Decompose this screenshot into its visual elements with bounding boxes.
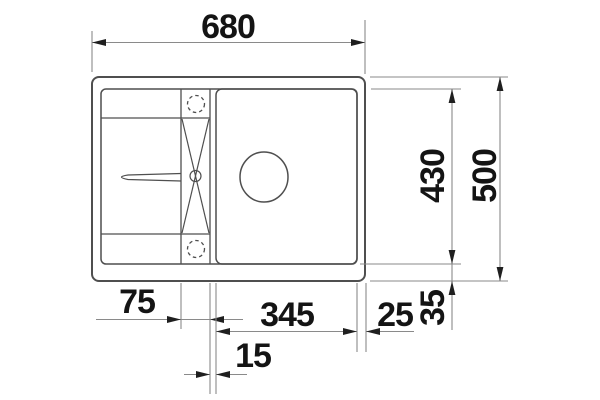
- tap-hole-bottom-icon: [188, 241, 205, 258]
- arrowhead-up: [497, 77, 504, 91]
- dimension-label-345: 345: [260, 296, 314, 334]
- sink-inner-rim: [101, 89, 357, 264]
- arrowhead-left: [92, 39, 106, 46]
- dimension-label-680: 680: [201, 8, 255, 46]
- dimension-label-15: 15: [235, 337, 271, 375]
- arrowhead-up: [449, 89, 456, 103]
- dimension-label-75: 75: [119, 283, 155, 321]
- arrowhead-right: [351, 39, 365, 46]
- arrowhead-down: [497, 267, 504, 281]
- dimension-tap-ledge-width: 75: [96, 283, 243, 329]
- dimension-bowl-depth: 430: [360, 89, 461, 264]
- sink-outline-group: [92, 77, 365, 281]
- dimension-label-35: 35: [414, 290, 452, 326]
- dimension-bowl-width: 345: [210, 283, 357, 394]
- drain-hole-icon: [240, 152, 288, 202]
- technical-drawing-canvas: 680 500 430 35 75 34: [0, 0, 600, 400]
- dimension-label-430: 430: [414, 149, 452, 203]
- arrowhead-left: [216, 328, 230, 335]
- arrowhead-right: [196, 371, 210, 378]
- arrowhead-right: [343, 328, 357, 335]
- arrowhead-left: [216, 371, 230, 378]
- dimension-label-25: 25: [377, 296, 413, 334]
- dimension-ledge-bowl-gap: 15: [184, 337, 271, 378]
- dimension-overall-width: 680: [92, 8, 365, 74]
- tap-hole-top-icon: [188, 96, 205, 113]
- dimension-label-500: 500: [466, 149, 504, 203]
- drain-groove: [122, 174, 182, 182]
- arrowhead-down: [449, 250, 456, 264]
- bowl-outline: [216, 89, 357, 264]
- sink-outer-rim: [92, 77, 365, 281]
- dimension-right-rim: 25: [366, 283, 414, 352]
- arrowhead-left: [210, 316, 224, 323]
- arrowhead-right: [167, 316, 181, 323]
- sink-dimension-diagram: 680 500 430 35 75 34: [0, 0, 600, 400]
- dimension-bottom-rim: 35: [414, 264, 455, 330]
